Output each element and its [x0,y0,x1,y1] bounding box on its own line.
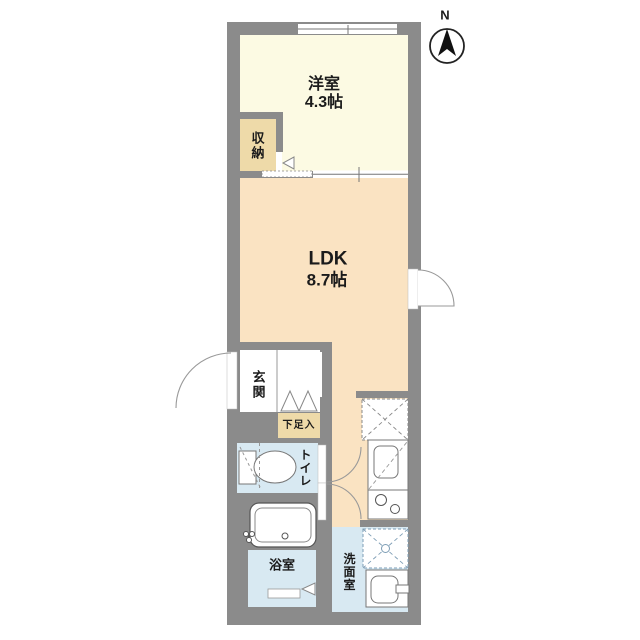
toilet-bowl-icon [239,443,296,491]
entrance-label: 玄関 [252,370,265,400]
bathtub-icon [244,503,317,547]
western-room-size: 4.3帖 [305,95,343,111]
washroom-label: 洗面室 [343,553,355,592]
washroom-door-icon [318,483,361,520]
gas-stove-icon [368,490,408,519]
folding-door-icon [281,391,317,411]
ldk-door-icon [408,269,454,309]
entrance-door-icon [176,352,237,409]
bath-door-marker-icon [268,583,315,598]
bathroom-label: 浴室 [269,559,295,572]
western-room-name: 洋室 [308,77,340,93]
floor-plan: N 洋室 4.3帖 収納 LDK 8.7帖 玄関 下足入 トイレ 浴室 洗面室 [0,0,640,640]
ldk-name: LDK [308,250,347,269]
ldk-size: 8.7帖 [307,272,348,289]
toilet-label: トイレ [299,449,311,488]
closet-door-marker-icon [283,157,294,169]
toilet-door-icon [318,445,361,483]
window-icon [298,24,397,34]
compass-icon [430,29,464,63]
compass-label: N [440,9,449,22]
shoe-cabinet-label: 下足入 [283,421,316,431]
sliding-door-icon [262,167,408,182]
refrigerator-space-icon [362,399,408,440]
closet-label: 収納 [251,131,264,161]
washbasin-icon [366,570,409,607]
kitchen-sink-icon [368,440,408,490]
washing-machine-space-icon [363,529,408,568]
